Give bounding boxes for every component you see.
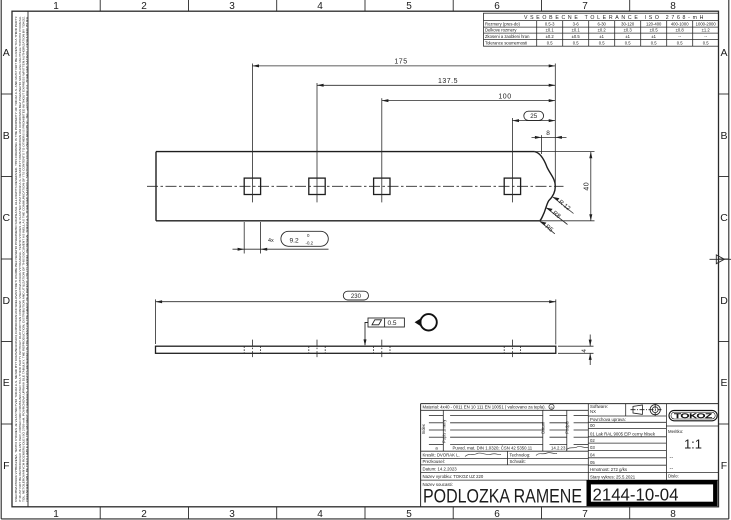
svg-text:00: 00 bbox=[590, 423, 595, 428]
svg-text:±1: ±1 bbox=[625, 34, 630, 39]
svg-text:0.5: 0.5 bbox=[573, 40, 579, 45]
svg-text:4x: 4x bbox=[268, 238, 274, 244]
svg-text:6: 6 bbox=[494, 1, 500, 12]
svg-text:2: 2 bbox=[141, 509, 147, 520]
svg-text:1:1: 1:1 bbox=[684, 437, 702, 452]
svg-text:4: 4 bbox=[317, 1, 323, 12]
svg-text:E: E bbox=[720, 377, 727, 389]
svg-text:1: 1 bbox=[53, 1, 59, 12]
svg-text:3: 3 bbox=[229, 1, 235, 12]
svg-text:03: 03 bbox=[590, 445, 595, 450]
svg-text:3: 3 bbox=[229, 509, 235, 520]
svg-text:1: 1 bbox=[53, 509, 59, 520]
svg-text:C: C bbox=[720, 212, 728, 224]
svg-text:±0.5: ±0.5 bbox=[572, 34, 581, 39]
svg-text:30-120: 30-120 bbox=[621, 21, 635, 26]
svg-text:±0.1: ±0.1 bbox=[546, 28, 555, 33]
svg-text:25: 25 bbox=[530, 113, 537, 120]
svg-text:VSEOBECNE TOLERANCE ISO 2768-m: VSEOBECNE TOLERANCE ISO 2768-mH bbox=[524, 15, 706, 21]
svg-text:E: E bbox=[3, 377, 10, 389]
svg-text:±1: ±1 bbox=[599, 34, 604, 39]
svg-text:Schvalit:: Schvalit: bbox=[510, 459, 526, 464]
svg-text:-0.2: -0.2 bbox=[306, 240, 314, 245]
svg-text:±1: ±1 bbox=[651, 34, 656, 39]
svg-text:--: -- bbox=[670, 466, 674, 472]
svg-text:Stary vykres: 25.5.2021: Stary vykres: 25.5.2021 bbox=[590, 475, 636, 480]
svg-text:±0.2: ±0.2 bbox=[546, 34, 555, 39]
svg-text:Datum: 14.2.2023: Datum: 14.2.2023 bbox=[423, 466, 458, 471]
svg-text:137.5: 137.5 bbox=[438, 78, 458, 85]
svg-text:Nazev vyrobku: TOKOZ UZ 220: Nazev vyrobku: TOKOZ UZ 220 bbox=[423, 474, 484, 479]
svg-text:Podpis: Podpis bbox=[565, 421, 570, 434]
svg-text:Prezkousel:: Prezkousel: bbox=[423, 459, 445, 464]
svg-text:8: 8 bbox=[546, 130, 550, 137]
svg-text:40: 40 bbox=[584, 182, 591, 191]
svg-text:0.5: 0.5 bbox=[625, 40, 631, 45]
svg-text:0.5: 0.5 bbox=[651, 40, 657, 45]
svg-text:Hmotnost: 272 g/ks: Hmotnost: 272 g/ks bbox=[590, 467, 627, 472]
svg-text:5: 5 bbox=[406, 1, 412, 12]
svg-text:1000-2000: 1000-2000 bbox=[696, 21, 717, 26]
svg-text:0.5: 0.5 bbox=[677, 40, 683, 45]
svg-text:Index: Index bbox=[421, 424, 426, 434]
svg-text:01 Lak RAL 9005 E/P cerny hlis: 01 Lak RAL 9005 E/P cerny hlisek bbox=[590, 431, 656, 436]
svg-text:04: 04 bbox=[590, 452, 595, 457]
svg-text:Povrchova uprava:: Povrchova uprava: bbox=[590, 417, 626, 422]
svg-text:--: -- bbox=[670, 455, 674, 461]
svg-text:7: 7 bbox=[582, 509, 588, 520]
svg-text:OFFENDERS WILL BE HELD LIABLE: OFFENDERS WILL BE HELD LIABLE FOR THE PA… bbox=[25, 16, 29, 502]
svg-text:3-6: 3-6 bbox=[573, 21, 580, 26]
svg-text:F: F bbox=[3, 460, 9, 472]
svg-text:D: D bbox=[720, 295, 728, 307]
svg-text:PODLOZKA RAMENE: PODLOZKA RAMENE bbox=[423, 486, 582, 508]
svg-text:175: 175 bbox=[394, 59, 407, 66]
svg-text:A: A bbox=[3, 47, 10, 59]
svg-text:Delkove rozmery: Delkove rozmery bbox=[485, 28, 517, 33]
svg-text:05: 05 bbox=[590, 460, 595, 465]
svg-text:0.5: 0.5 bbox=[388, 320, 397, 327]
svg-text:±0.5: ±0.5 bbox=[650, 28, 659, 33]
svg-text:100: 100 bbox=[498, 93, 511, 100]
svg-text:0.5: 0.5 bbox=[547, 40, 553, 45]
svg-text:Datum: Datum bbox=[540, 421, 545, 434]
svg-text:±0.1: ±0.1 bbox=[572, 28, 581, 33]
svg-text:7: 7 bbox=[582, 1, 588, 12]
svg-text:400-1000: 400-1000 bbox=[671, 21, 689, 26]
svg-text:Meritko:: Meritko: bbox=[668, 429, 683, 434]
svg-text:4: 4 bbox=[317, 509, 323, 520]
svg-text:NX: NX bbox=[590, 409, 596, 414]
svg-text:2: 2 bbox=[141, 1, 147, 12]
svg-text:120-400: 120-400 bbox=[646, 21, 662, 26]
svg-text:TOKOZ: TOKOZ bbox=[674, 413, 712, 420]
svg-text:±0.8: ±0.8 bbox=[676, 28, 685, 33]
svg-text:6: 6 bbox=[494, 509, 500, 520]
svg-text:Tolerance soumernosti: Tolerance soumernosti bbox=[485, 40, 527, 45]
svg-text:Rozmery (pres-do): Rozmery (pres-do) bbox=[485, 21, 521, 26]
svg-text:0.5: 0.5 bbox=[703, 40, 709, 45]
svg-text:Technolog:: Technolog: bbox=[510, 453, 531, 458]
svg-text:9.2: 9.2 bbox=[290, 237, 299, 244]
svg-text:Zkoseni a zaobleni hran: Zkoseni a zaobleni hran bbox=[485, 34, 530, 39]
svg-text:0.5-3: 0.5-3 bbox=[545, 21, 555, 26]
svg-text:230: 230 bbox=[351, 294, 362, 300]
svg-text:8: 8 bbox=[670, 509, 676, 520]
svg-text:Material: 4x40 - 0011 EN 10 1: Material: 4x40 - 0011 EN 10 111 EN 10051… bbox=[423, 405, 546, 410]
svg-text:0.5: 0.5 bbox=[599, 40, 605, 45]
svg-text:F: F bbox=[721, 460, 727, 472]
svg-text:02: 02 bbox=[590, 438, 595, 443]
svg-text:B: B bbox=[720, 130, 727, 142]
svg-text:D: D bbox=[3, 295, 11, 307]
svg-text:6-30: 6-30 bbox=[598, 21, 607, 26]
svg-text:Kreslit: DVORAK L.: Kreslit: DVORAK L. bbox=[423, 453, 460, 458]
svg-text:B: B bbox=[3, 130, 10, 142]
svg-text:±1.2: ±1.2 bbox=[702, 28, 711, 33]
svg-text:14.2.23: 14.2.23 bbox=[551, 446, 566, 451]
svg-text:8: 8 bbox=[670, 1, 676, 12]
svg-text:C: C bbox=[3, 212, 11, 224]
svg-text:Puvod. mat. DIN 1.0320; ČSN 42: Puvod. mat. DIN 1.0320; ČSN 42 5350.11 bbox=[453, 446, 533, 451]
svg-text:4: 4 bbox=[581, 349, 588, 353]
svg-text:A: A bbox=[720, 47, 727, 59]
svg-text:Popis zmeny: Popis zmeny bbox=[441, 419, 446, 443]
svg-text:2144-10-04: 2144-10-04 bbox=[593, 485, 679, 505]
svg-text:5: 5 bbox=[406, 509, 412, 520]
svg-text:Dislo:: Dislo: bbox=[668, 474, 679, 479]
svg-text:±0.3: ±0.3 bbox=[624, 28, 633, 33]
svg-text:±0.2: ±0.2 bbox=[598, 28, 607, 33]
